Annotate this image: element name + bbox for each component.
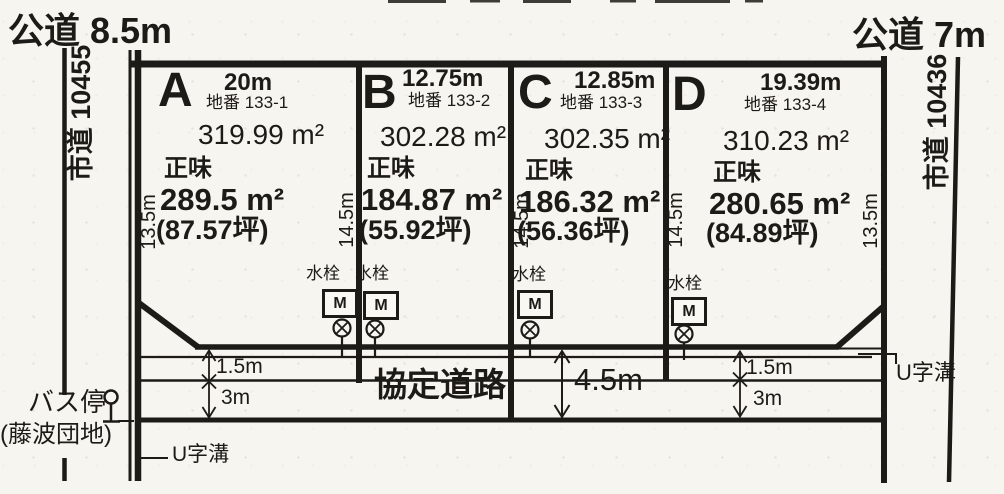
meter-box-3: M bbox=[517, 290, 553, 319]
plot-d-gross-area: 310.23 m² bbox=[723, 126, 849, 155]
plot-d-tsubo: (84.89坪) bbox=[706, 219, 819, 247]
land-plot-site-plan: 公道 8.5m 公道 7m 市道 10455 市道 10436 A 20m 地番… bbox=[0, 0, 1004, 494]
plot-d-lot-number: 地番 133-4 bbox=[744, 96, 826, 114]
meter-box-1: M bbox=[322, 289, 358, 318]
plot-c-lot-number: 地番 133-3 bbox=[560, 94, 642, 112]
plot-a-letter: A bbox=[158, 66, 193, 116]
plot-c-letter: C bbox=[518, 68, 553, 118]
meter-box-2: M bbox=[363, 291, 399, 320]
plot-a-gross-area: 319.99 m² bbox=[198, 120, 324, 149]
dimension-arrow-left bbox=[202, 351, 216, 418]
side-dim-3: 14.5m bbox=[512, 189, 534, 253]
water-valve-icon-1 bbox=[334, 320, 351, 337]
top-road-right-label: 公道 7m bbox=[852, 16, 986, 54]
side-dim-2: 14.5m bbox=[337, 188, 359, 252]
plot-d-net-label: 正味 bbox=[713, 160, 761, 185]
u-gutter-right-label: U字溝 bbox=[896, 361, 956, 384]
water-tap-label-1: 水栓 bbox=[306, 265, 340, 283]
road-width-label: 4.5m bbox=[574, 364, 643, 397]
dimension-arrow-right bbox=[733, 352, 747, 417]
plot-a-lot-number: 地番 133-1 bbox=[206, 94, 288, 112]
plot-a-frontage: 20m bbox=[224, 70, 272, 95]
side-dim-4: 14.5m bbox=[666, 188, 688, 252]
strip-dim-right-2: 3m bbox=[753, 388, 782, 410]
plot-c-gross-area: 302.35 m² bbox=[544, 124, 670, 153]
road-width-arrow bbox=[555, 351, 570, 417]
strip-dim-left-1: 1.5m bbox=[216, 356, 263, 378]
strip-dim-right-1: 1.5m bbox=[746, 357, 793, 379]
side-road-right-label: 市道 10436 bbox=[923, 52, 957, 192]
plot-c-net-label: 正味 bbox=[525, 158, 573, 183]
plot-b-frontage: 12.75m bbox=[402, 66, 483, 91]
bus-stop-name: (藤波団地) bbox=[0, 422, 112, 447]
plot-c-net-area: 186.32 m² bbox=[519, 186, 660, 219]
plot-b-net-label: 正味 bbox=[367, 156, 415, 181]
plot-d-frontage: 19.39m bbox=[760, 70, 841, 95]
u-gutter-right-leader bbox=[858, 354, 896, 364]
plot-c-frontage: 12.85m bbox=[574, 68, 655, 93]
plot-d-letter: D bbox=[672, 70, 707, 120]
plot-a-net-label: 正味 bbox=[164, 156, 212, 181]
strip-dim-left-2: 3m bbox=[221, 387, 250, 409]
plot-b-gross-area: 302.28 m² bbox=[380, 122, 506, 151]
meter-box-4: M bbox=[671, 297, 707, 326]
plot-b-tsubo: (55.92坪) bbox=[359, 216, 472, 244]
cropped-text-remnant bbox=[388, 1, 763, 2]
agreement-road-label: 協定道路 bbox=[374, 368, 506, 403]
bus-stop-label: バス停 bbox=[28, 389, 106, 416]
water-valve-icon-3 bbox=[522, 322, 539, 339]
plot-b-letter: B bbox=[362, 68, 397, 118]
water-tap-label-2: 水栓 bbox=[355, 265, 389, 283]
water-valve-icon-4 bbox=[676, 326, 693, 343]
plot-a-tsubo: (87.57坪) bbox=[156, 216, 269, 244]
side-road-left-label: 市道 10455 bbox=[67, 43, 101, 183]
side-dim-1: 13.5m bbox=[139, 190, 161, 254]
plot-d-net-area: 280.65 m² bbox=[709, 188, 850, 221]
plot-a-net-area: 289.5 m² bbox=[160, 184, 284, 217]
side-dim-5: 13.5m bbox=[861, 189, 883, 253]
plot-b-lot-number: 地番 133-2 bbox=[408, 92, 490, 110]
water-valve-icon-2 bbox=[367, 321, 384, 338]
plot-b-net-area: 184.87 m² bbox=[361, 184, 502, 217]
water-tap-label-4: 水栓 bbox=[668, 275, 702, 293]
water-tap-label-3: 水栓 bbox=[512, 266, 546, 284]
u-gutter-left-label: U字溝 bbox=[172, 444, 229, 466]
